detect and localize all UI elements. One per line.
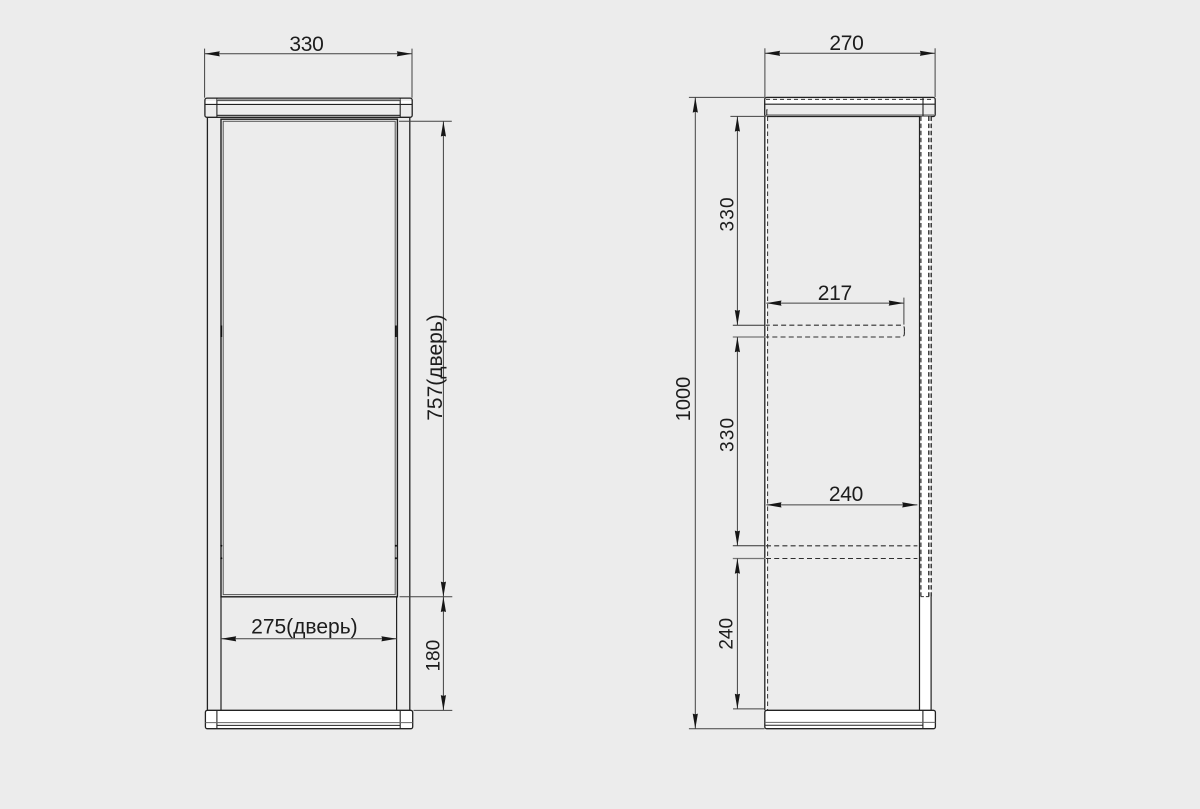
svg-text:330: 330 [717, 417, 738, 452]
svg-text:1000: 1000 [673, 377, 695, 422]
svg-text:270: 270 [829, 32, 863, 55]
svg-text:757(дверь): 757(дверь) [424, 314, 447, 421]
svg-text:275(дверь): 275(дверь) [251, 616, 358, 639]
svg-text:240: 240 [829, 483, 863, 506]
svg-text:330: 330 [717, 196, 738, 231]
svg-text:240: 240 [717, 618, 738, 650]
svg-text:217: 217 [818, 282, 852, 305]
svg-text:180: 180 [424, 640, 445, 672]
svg-text:330: 330 [289, 33, 323, 56]
